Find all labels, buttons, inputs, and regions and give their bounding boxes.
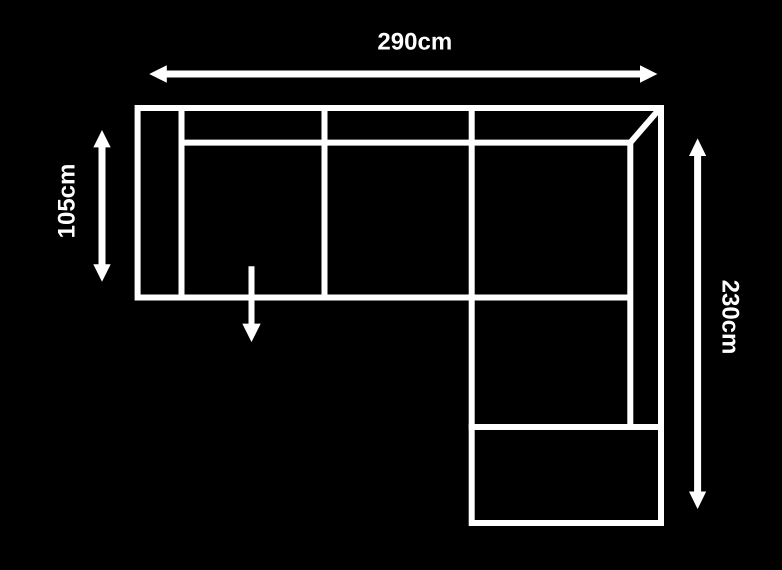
- svg-text:290cm: 290cm: [377, 29, 452, 56]
- svg-text:105cm: 105cm: [53, 164, 80, 239]
- svg-text:230cm: 230cm: [717, 280, 744, 355]
